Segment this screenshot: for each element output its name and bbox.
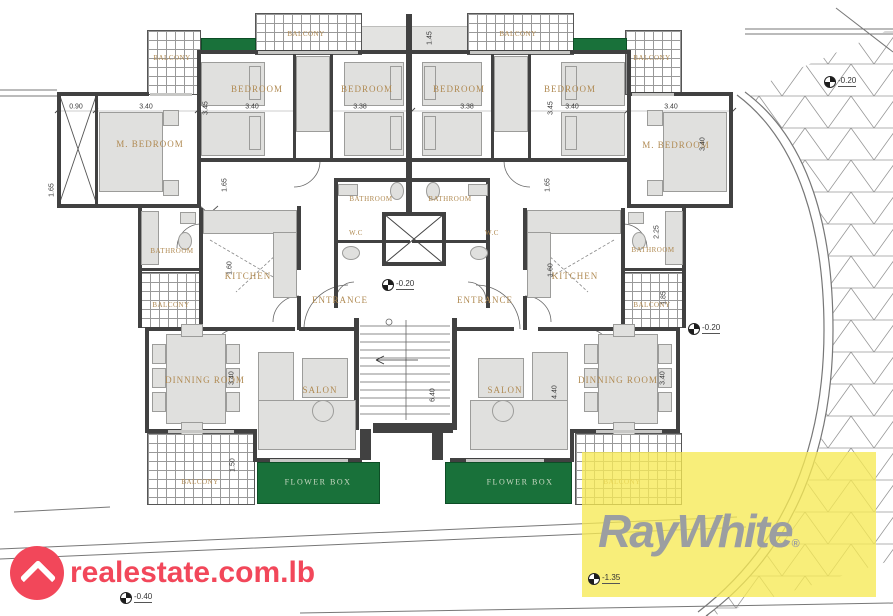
chair	[152, 392, 166, 412]
chair	[152, 344, 166, 364]
wall	[452, 318, 457, 430]
room-label: BEDROOM	[544, 84, 596, 94]
level-marker: -0.20	[824, 73, 856, 91]
chair	[181, 422, 203, 435]
wardrobe	[296, 56, 330, 132]
wall	[627, 50, 631, 208]
wall	[442, 212, 446, 266]
nightstand	[163, 110, 179, 126]
dimension: 3.45	[548, 101, 555, 115]
level-value: -0.20	[396, 279, 414, 290]
pillow	[249, 66, 261, 100]
dimension: 3.38	[460, 104, 474, 111]
window	[150, 93, 192, 96]
pillow	[565, 66, 577, 100]
dimension: 1.60	[548, 263, 555, 277]
door-arcs	[177, 161, 647, 353]
balcony-hatch	[140, 272, 202, 328]
wall	[334, 240, 410, 243]
dimension: 4.40	[552, 385, 559, 399]
pillow	[424, 66, 436, 100]
dimension: 3.40	[565, 104, 579, 111]
room-label: BATHROOM	[428, 195, 471, 203]
dimension: 1.60	[227, 261, 234, 275]
dimension: 3.40	[660, 371, 667, 385]
window	[470, 51, 570, 54]
realestate-logo: realestate.com.lb	[10, 546, 315, 600]
sink	[628, 212, 644, 224]
wall	[95, 94, 98, 206]
wall	[627, 204, 733, 208]
room-label: BALCONY	[153, 54, 190, 62]
nightstand	[647, 180, 663, 196]
raywhite-text: RayWhite	[598, 505, 792, 557]
chair	[613, 324, 635, 337]
coffee-table	[492, 400, 514, 422]
window	[258, 51, 358, 54]
wall	[729, 92, 733, 208]
kitchen-counter	[273, 232, 297, 298]
dimension: 3.40	[700, 137, 707, 151]
dimension: 6.40	[430, 388, 437, 402]
stair-treads	[360, 319, 450, 420]
room-label: BALCONY	[633, 54, 670, 62]
room-label: SALON	[487, 385, 522, 395]
sofa	[470, 400, 568, 450]
room-label: BEDROOM	[341, 84, 393, 94]
dimension: 1.65	[222, 178, 229, 192]
kitchen-counter	[203, 210, 297, 234]
level-marker: -0.20	[688, 320, 720, 338]
balcony-hatch	[622, 272, 684, 328]
chair	[226, 344, 240, 364]
level-target-icon	[588, 573, 600, 585]
wall	[538, 327, 680, 331]
registered-icon: ®	[792, 538, 800, 550]
chair	[226, 392, 240, 412]
wall	[57, 92, 61, 208]
window	[168, 430, 234, 433]
wall	[432, 429, 443, 460]
balcony-hatch	[147, 433, 255, 505]
room-label: BALCONY	[152, 301, 189, 309]
window	[596, 430, 662, 433]
room-label: ENTRANCE	[312, 295, 368, 305]
window	[270, 459, 348, 462]
chair	[152, 368, 166, 388]
sink	[180, 212, 196, 224]
wall	[330, 52, 333, 158]
coffee-table	[312, 400, 334, 422]
chair	[613, 422, 635, 435]
pillow	[565, 116, 577, 150]
wall	[138, 268, 200, 271]
dimension: 2.25	[654, 225, 661, 239]
toilet	[342, 246, 360, 260]
room-label: ENTRANCE	[457, 295, 513, 305]
room-label: BALCONY	[287, 30, 324, 38]
room-label: SALON	[302, 385, 337, 395]
level-value: -0.20	[838, 76, 856, 87]
dimension: 1.65	[545, 178, 552, 192]
wall	[297, 206, 301, 270]
wall	[299, 327, 358, 331]
chair	[658, 344, 672, 364]
wall	[412, 240, 488, 243]
pillow	[249, 116, 261, 150]
wall	[360, 429, 371, 460]
wall	[197, 158, 630, 162]
raywhite-logo: RayWhite®	[598, 504, 800, 558]
balcony-hatch	[625, 30, 682, 95]
wall	[57, 204, 201, 208]
wall	[523, 296, 527, 330]
wall	[382, 212, 446, 216]
chevron-up-icon	[20, 560, 57, 597]
dimension: 3.40	[245, 104, 259, 111]
pillow	[390, 116, 402, 150]
room-label: BATHROOM	[631, 246, 674, 254]
room-label: W.C	[349, 229, 363, 237]
wall	[382, 212, 386, 266]
elevator-x	[384, 214, 444, 264]
pillow	[424, 116, 436, 150]
wall	[452, 327, 514, 331]
toilet	[470, 246, 488, 260]
dimension: 3.40	[664, 104, 678, 111]
level-value: -0.20	[702, 323, 720, 334]
wall	[412, 178, 490, 182]
level-marker: -0.20	[382, 276, 414, 294]
realestate-logo-text: realestate.com.lb	[70, 556, 315, 590]
chair	[584, 392, 598, 412]
dimension: 1.65	[49, 183, 56, 197]
chair	[658, 392, 672, 412]
balcony-hatch	[147, 30, 201, 95]
chair	[181, 324, 203, 337]
room-label: BATHROOM	[150, 247, 193, 255]
chair	[584, 344, 598, 364]
wall	[621, 268, 683, 271]
room-label: BALCONY	[181, 478, 218, 486]
kitchen-counter	[527, 210, 621, 234]
dimension: 3.40	[139, 104, 153, 111]
bathtub	[141, 211, 159, 265]
double-bed	[99, 112, 163, 192]
window	[466, 459, 544, 462]
level-target-icon	[688, 323, 700, 335]
wall	[382, 262, 446, 266]
room-label: M. BEDROOM	[116, 139, 184, 149]
dimension: 3.38	[353, 104, 367, 111]
wall	[373, 423, 453, 433]
wall	[297, 296, 301, 330]
nightstand	[163, 180, 179, 196]
double-bed	[663, 112, 727, 192]
window	[632, 93, 674, 96]
room-label: KITCHEN	[552, 271, 599, 281]
sofa	[258, 400, 356, 450]
floor-plan: M. BEDROOM BEDROOM BEDROOM BEDROOM BEDRO…	[0, 0, 893, 616]
room-label: FLOWER BOX	[487, 478, 554, 487]
level-target-icon	[824, 76, 836, 88]
level-value: -1.35	[602, 573, 620, 584]
realestate-pin-icon	[10, 546, 64, 600]
pillow	[390, 66, 402, 100]
dimension: 1.50	[230, 458, 237, 472]
room-label: BALCONY	[499, 30, 536, 38]
nightstand	[647, 110, 663, 126]
dimension: 3.40	[229, 371, 236, 385]
room-label: BEDROOM	[231, 84, 283, 94]
wall	[145, 327, 295, 331]
dimension: 1.85	[661, 291, 668, 305]
bathtub	[665, 211, 683, 265]
dimension: 3.45	[203, 101, 210, 115]
wall	[528, 52, 531, 158]
dimension: 0.90	[69, 104, 83, 111]
wall	[334, 178, 412, 182]
dimension: 1.45	[427, 31, 434, 45]
level-marker: -1.35	[588, 570, 620, 588]
wall	[57, 92, 149, 96]
room-label: DINNING ROOM	[578, 375, 658, 385]
wardrobe	[494, 56, 528, 132]
wall	[145, 327, 149, 433]
wall	[406, 14, 412, 214]
room-label: BATHROOM	[349, 195, 392, 203]
level-target-icon	[382, 279, 394, 291]
room-label: W.C	[485, 229, 499, 237]
room-label: BEDROOM	[433, 84, 485, 94]
room-label: FLOWER BOX	[285, 478, 352, 487]
wall	[676, 327, 680, 433]
